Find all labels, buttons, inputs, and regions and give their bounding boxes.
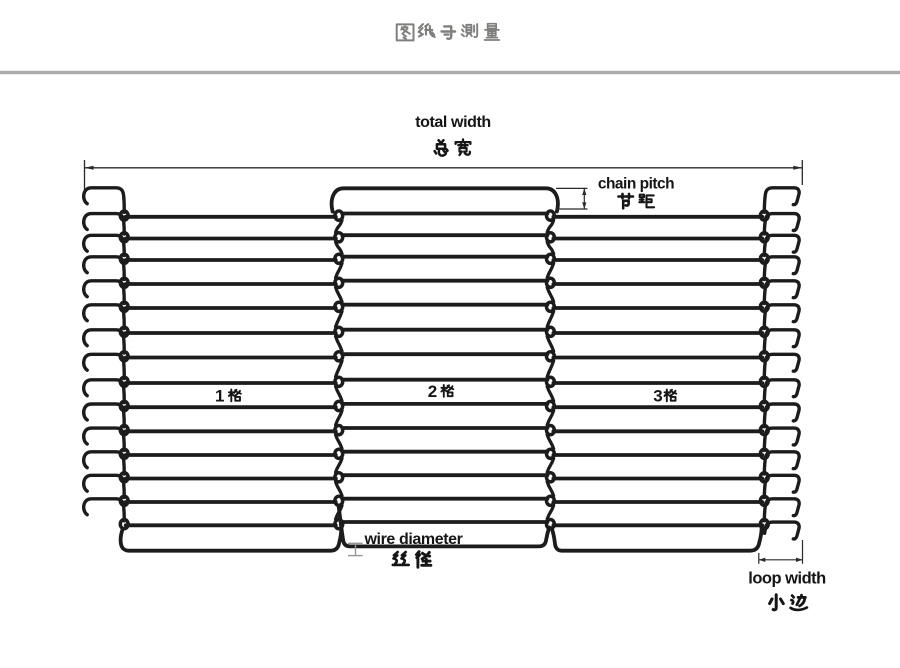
svg-text:2: 2: [428, 382, 437, 401]
svg-text:1: 1: [215, 387, 224, 406]
svg-text:3: 3: [653, 387, 662, 406]
svg-text:wire diameter: wire diameter: [364, 531, 463, 548]
svg-text:total width: total width: [415, 114, 491, 131]
svg-text:loop width: loop width: [748, 570, 826, 588]
svg-text:chain pitch: chain pitch: [598, 176, 674, 193]
